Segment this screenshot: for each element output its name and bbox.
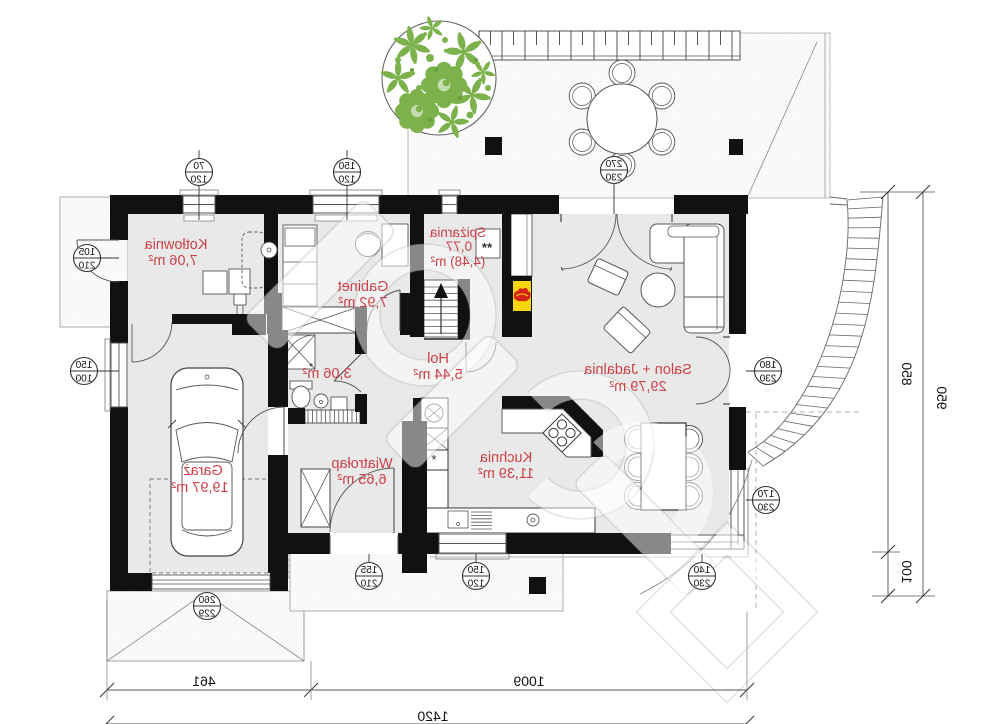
svg-text:210: 210 — [360, 579, 377, 590]
svg-text:230: 230 — [757, 503, 774, 514]
svg-text:950: 950 — [934, 386, 950, 410]
svg-text:Gabinet: Gabinet — [338, 279, 389, 295]
svg-text:180: 180 — [759, 360, 776, 371]
svg-text:155: 155 — [360, 565, 377, 576]
svg-text:3,06 m²: 3,06 m² — [302, 366, 351, 382]
svg-text:Garaż: Garaż — [183, 463, 223, 479]
svg-text:1420: 1420 — [417, 708, 448, 724]
svg-text:120: 120 — [338, 175, 355, 186]
svg-text:150: 150 — [338, 161, 355, 172]
svg-text:850: 850 — [899, 362, 915, 386]
svg-text:230: 230 — [693, 579, 710, 590]
svg-text:150: 150 — [467, 565, 484, 576]
svg-text:**: ** — [481, 240, 492, 255]
svg-text:Wiatrołap: Wiatrołap — [331, 456, 392, 472]
svg-text:150: 150 — [75, 360, 92, 371]
svg-text:Salon + Jadalnia: Salon + Jadalnia — [583, 362, 692, 378]
svg-text:1009: 1009 — [513, 673, 544, 689]
svg-text:11,39 m²: 11,39 m² — [478, 466, 534, 482]
svg-text:100: 100 — [75, 374, 92, 385]
svg-text:70: 70 — [193, 161, 205, 172]
svg-text:270: 270 — [605, 159, 622, 170]
svg-text:105: 105 — [78, 247, 95, 258]
svg-text:230: 230 — [605, 173, 622, 184]
svg-text:Kotłownia: Kotłownia — [144, 237, 208, 253]
svg-text:(4,48) m²: (4,48) m² — [430, 254, 485, 269]
svg-text:170: 170 — [757, 489, 774, 500]
svg-text:Hol: Hol — [427, 351, 449, 367]
svg-text:100: 100 — [899, 560, 915, 584]
svg-text:120: 120 — [467, 579, 484, 590]
svg-text:Spiżarnia: Spiżarnia — [429, 225, 486, 240]
svg-text:29,79 m²: 29,79 m² — [609, 379, 666, 395]
svg-text:5,44 m²: 5,44 m² — [413, 367, 462, 383]
svg-text:461: 461 — [192, 673, 216, 689]
svg-text:19,97 m²: 19,97 m² — [171, 480, 228, 496]
svg-text:210: 210 — [78, 261, 95, 272]
svg-text:140: 140 — [693, 565, 710, 576]
svg-text:7,92 m²: 7,92 m² — [338, 295, 387, 311]
svg-text:229: 229 — [198, 609, 215, 620]
svg-text:120: 120 — [190, 175, 207, 186]
svg-text:7,06 m²: 7,06 m² — [148, 253, 197, 269]
svg-text:6,65 m²: 6,65 m² — [337, 472, 386, 488]
svg-text:230: 230 — [759, 374, 776, 385]
svg-text:Kuchnia: Kuchnia — [479, 450, 532, 466]
svg-text:260: 260 — [198, 595, 215, 606]
svg-text:0,77: 0,77 — [446, 239, 472, 254]
